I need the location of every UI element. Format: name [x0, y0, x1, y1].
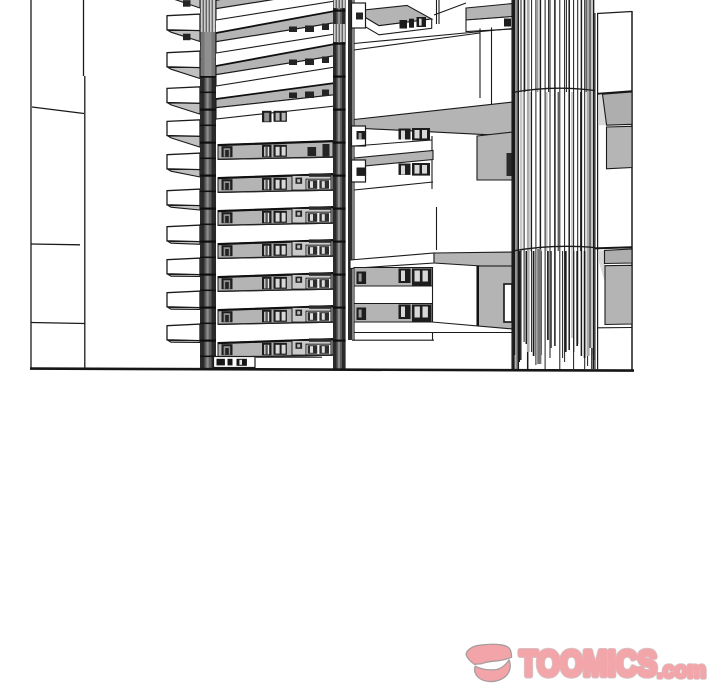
svg-text:TOOMICS: TOOMICS — [520, 644, 658, 684]
svg-text:.com: .com — [657, 658, 706, 683]
